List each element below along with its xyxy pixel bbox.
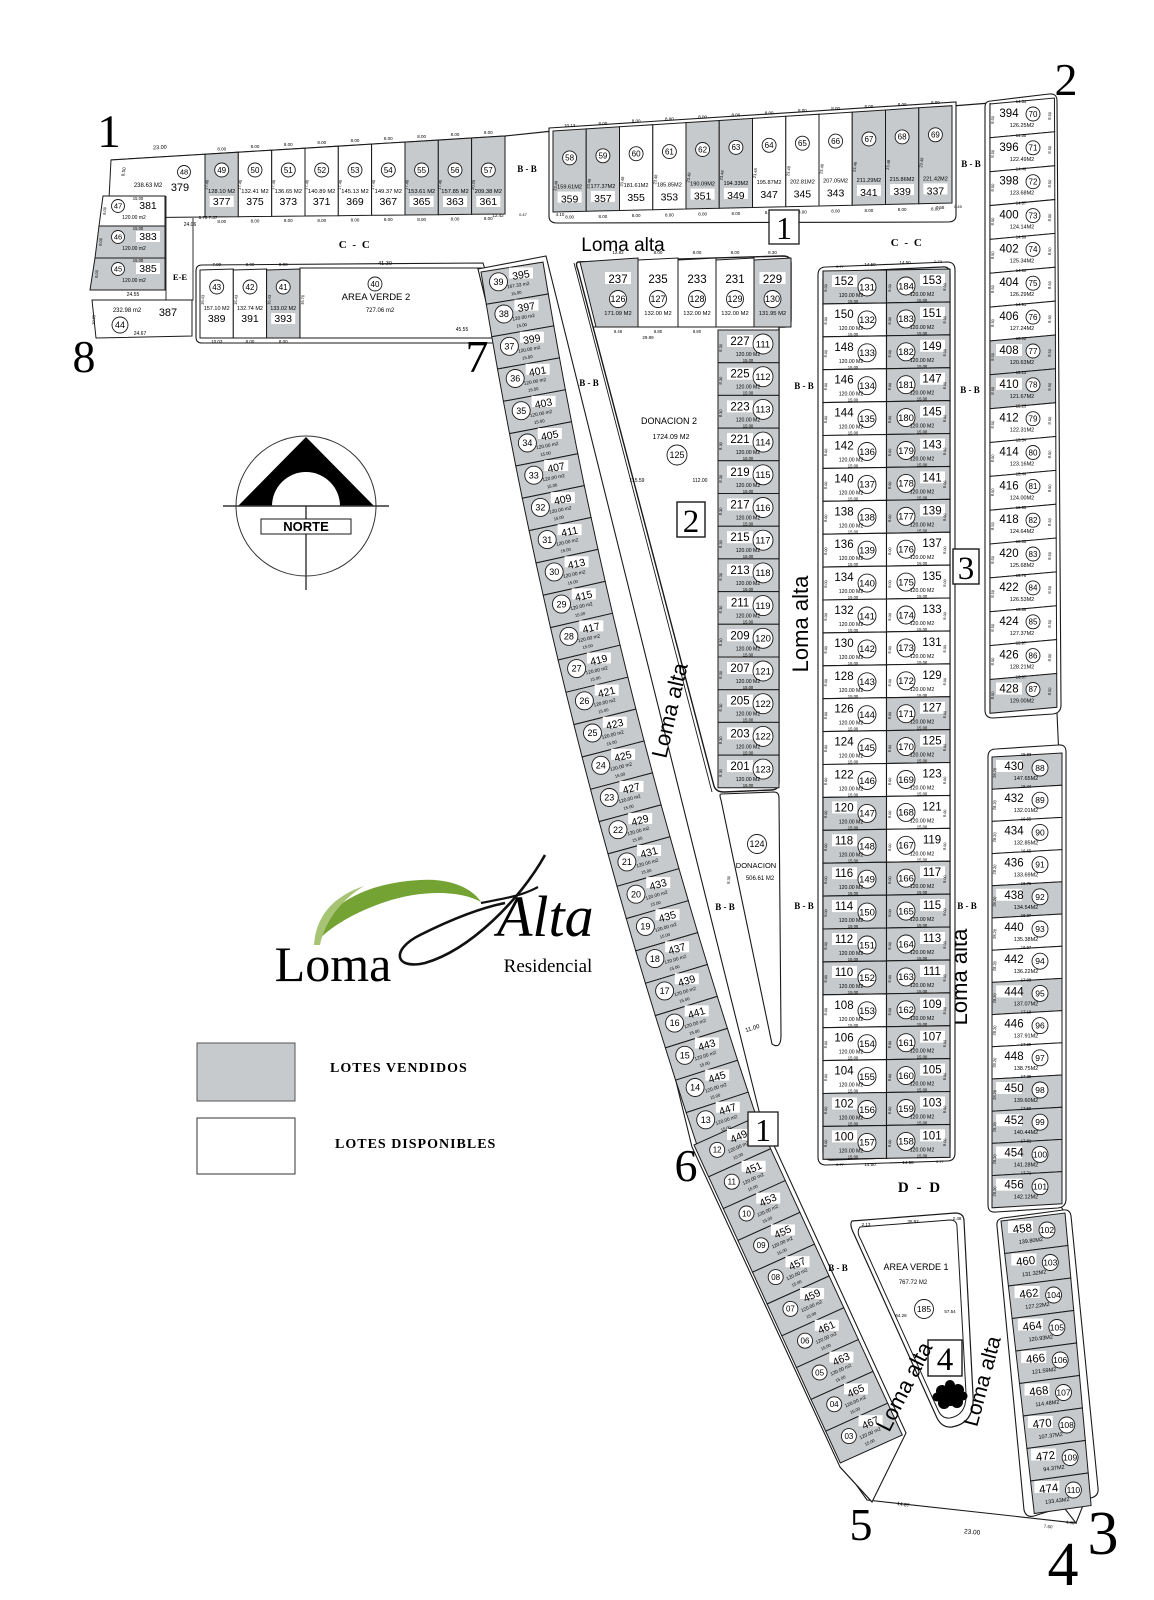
svg-text:8.00: 8.00 — [451, 132, 460, 137]
svg-text:470: 470 — [1032, 1417, 1053, 1431]
svg-text:227: 227 — [730, 336, 749, 348]
svg-text:03: 03 — [844, 1432, 853, 1441]
svg-text:93: 93 — [1035, 924, 1045, 934]
svg-text:115: 115 — [755, 470, 770, 481]
svg-text:23.00: 23.00 — [964, 1528, 981, 1536]
svg-text:125.34M2: 125.34M2 — [1010, 258, 1034, 264]
svg-text:120.00 m2: 120.00 m2 — [122, 215, 146, 221]
svg-text:107: 107 — [922, 1032, 941, 1044]
svg-text:116: 116 — [835, 868, 853, 880]
svg-text:131: 131 — [922, 637, 941, 649]
svg-text:87: 87 — [1029, 685, 1038, 694]
svg-text:14.50: 14.50 — [864, 1162, 876, 1167]
svg-text:143: 143 — [859, 677, 875, 688]
svg-text:440: 440 — [1004, 922, 1023, 934]
svg-text:215.86M2: 215.86M2 — [890, 177, 915, 183]
svg-text:100: 100 — [1033, 1149, 1047, 1159]
svg-text:137: 137 — [859, 480, 875, 491]
svg-text:211.29M2: 211.29M2 — [857, 178, 881, 184]
svg-text:177.37M2: 177.37M2 — [590, 184, 615, 190]
svg-text:8.00: 8.00 — [943, 1138, 948, 1146]
svg-text:65: 65 — [798, 139, 807, 148]
svg-text:8.00: 8.00 — [888, 909, 893, 917]
svg-text:8.00: 8.00 — [898, 102, 907, 107]
svg-text:8.00: 8.00 — [824, 942, 829, 950]
svg-text:231: 231 — [725, 274, 744, 286]
svg-text:36: 36 — [510, 374, 520, 384]
svg-text:8.00: 8.00 — [888, 712, 893, 720]
svg-text:AREA VERDE 1: AREA VERDE 1 — [883, 1262, 948, 1272]
svg-text:190.09M2: 190.09M2 — [690, 182, 715, 188]
svg-text:24.55: 24.55 — [127, 292, 140, 298]
svg-text:147: 147 — [922, 374, 941, 386]
svg-text:0.73: 0.73 — [934, 259, 943, 264]
svg-text:144: 144 — [834, 408, 854, 420]
svg-text:8.00: 8.00 — [824, 547, 829, 555]
svg-text:145: 145 — [922, 407, 941, 419]
svg-text:8.00: 8.00 — [732, 112, 741, 117]
svg-text:22: 22 — [613, 825, 623, 835]
svg-text:127.37M2: 127.37M2 — [1010, 631, 1034, 637]
svg-text:8.00: 8.00 — [888, 843, 893, 851]
svg-text:365: 365 — [413, 196, 431, 208]
svg-text:15.83: 15.83 — [1021, 752, 1032, 757]
svg-text:213: 213 — [730, 565, 749, 577]
svg-text:17: 17 — [660, 986, 670, 996]
svg-text:64.28: 64.28 — [895, 1313, 907, 1318]
svg-text:132.00 M2: 132.00 M2 — [721, 311, 748, 317]
svg-text:132.85M2: 132.85M2 — [1014, 840, 1038, 846]
svg-text:357: 357 — [594, 193, 612, 205]
svg-text:25: 25 — [587, 728, 597, 738]
svg-text:424: 424 — [999, 616, 1019, 628]
svg-text:116: 116 — [755, 503, 770, 514]
svg-text:28.20: 28.20 — [992, 928, 998, 939]
svg-text:138: 138 — [834, 506, 853, 518]
svg-text:8.00: 8.00 — [798, 108, 807, 113]
svg-text:8.50: 8.50 — [990, 115, 996, 124]
svg-text:8.00: 8.00 — [384, 136, 393, 141]
svg-text:140: 140 — [834, 473, 853, 485]
svg-text:8.50: 8.50 — [1047, 179, 1053, 188]
svg-text:124.64M2: 124.64M2 — [1010, 529, 1034, 535]
svg-text:8.00: 8.00 — [831, 209, 840, 214]
svg-text:37: 37 — [504, 341, 514, 351]
svg-text:39: 39 — [493, 277, 503, 287]
svg-text:49: 49 — [217, 166, 226, 175]
svg-text:361: 361 — [480, 196, 498, 208]
svg-text:24.06: 24.06 — [184, 222, 197, 228]
svg-text:171: 171 — [898, 709, 914, 720]
svg-text:8.00: 8.00 — [898, 207, 907, 212]
svg-text:136.22M2: 136.22M2 — [1014, 969, 1038, 975]
svg-text:141: 141 — [859, 611, 875, 622]
svg-text:139.60M2: 139.60M2 — [1014, 1098, 1038, 1104]
svg-text:153.61 M2: 153.61 M2 — [408, 189, 435, 195]
svg-text:15.00: 15.00 — [848, 1154, 859, 1159]
svg-text:08: 08 — [771, 1273, 780, 1282]
svg-text:B - B: B - B — [828, 1263, 848, 1273]
svg-text:132.41 M2: 132.41 M2 — [241, 189, 268, 195]
svg-text:111: 111 — [923, 966, 940, 978]
svg-text:8.50: 8.50 — [1047, 483, 1053, 492]
svg-text:7.60: 7.60 — [1044, 1524, 1054, 1530]
svg-text:8.00: 8.00 — [943, 678, 948, 686]
svg-text:8.50: 8.50 — [990, 454, 996, 463]
svg-text:178: 178 — [898, 479, 914, 490]
svg-text:8.00: 8.00 — [824, 1041, 829, 1049]
svg-text:8.00: 8.00 — [888, 613, 893, 621]
svg-text:D - D: D - D — [898, 1180, 942, 1196]
svg-text:15.86: 15.86 — [1016, 607, 1027, 612]
svg-text:17.50: 17.50 — [1021, 1106, 1032, 1111]
svg-text:137: 137 — [922, 538, 941, 550]
svg-text:Loma: Loma — [275, 936, 392, 992]
svg-text:16.87: 16.87 — [1021, 913, 1032, 918]
svg-text:8.00: 8.00 — [317, 218, 326, 223]
svg-text:359: 359 — [561, 194, 579, 206]
svg-text:18: 18 — [650, 954, 660, 964]
svg-text:8.00: 8.00 — [279, 262, 288, 267]
svg-text:182: 182 — [898, 347, 914, 358]
svg-text:28.20: 28.20 — [992, 1185, 998, 1196]
svg-text:48: 48 — [180, 168, 188, 177]
svg-text:76: 76 — [1029, 313, 1038, 322]
svg-text:64: 64 — [765, 141, 774, 150]
svg-text:221: 221 — [730, 434, 749, 446]
svg-text:126.25M2: 126.25M2 — [1010, 123, 1034, 129]
svg-text:LOTES VENDIDOS: LOTES VENDIDOS — [330, 1061, 468, 1076]
svg-text:8.00: 8.00 — [351, 138, 360, 143]
svg-text:438: 438 — [1004, 890, 1023, 902]
svg-text:132.00 M2: 132.00 M2 — [644, 311, 671, 317]
svg-text:114: 114 — [835, 901, 854, 913]
svg-text:15.00: 15.00 — [133, 226, 144, 231]
svg-text:15.00: 15.00 — [743, 783, 754, 788]
svg-text:8.30: 8.30 — [718, 670, 724, 679]
svg-text:28.20: 28.20 — [992, 767, 998, 778]
svg-text:148: 148 — [834, 342, 853, 354]
svg-text:450: 450 — [1004, 1083, 1023, 1095]
svg-text:40: 40 — [371, 280, 380, 289]
svg-text:12.42: 12.42 — [492, 213, 504, 218]
svg-text:428: 428 — [999, 684, 1018, 696]
svg-text:10.03: 10.03 — [211, 339, 223, 344]
svg-text:8.00: 8.00 — [246, 339, 255, 344]
svg-text:16.65: 16.65 — [1021, 849, 1032, 854]
svg-text:209.38 M2: 209.38 M2 — [475, 189, 502, 195]
svg-text:6: 6 — [675, 1140, 698, 1191]
svg-text:8.00: 8.00 — [317, 140, 326, 145]
svg-text:33: 33 — [529, 470, 539, 480]
svg-text:122.31M2: 122.31M2 — [1010, 428, 1034, 434]
svg-text:123: 123 — [922, 769, 941, 781]
svg-text:412: 412 — [999, 413, 1018, 425]
svg-text:432: 432 — [1004, 793, 1023, 805]
svg-text:123: 123 — [755, 764, 771, 775]
svg-text:8.30: 8.30 — [718, 735, 724, 744]
svg-text:8.00: 8.00 — [943, 546, 948, 554]
svg-text:110: 110 — [1067, 1485, 1081, 1495]
svg-text:2: 2 — [683, 504, 700, 540]
svg-text:375: 375 — [246, 196, 264, 208]
svg-text:78: 78 — [1029, 381, 1038, 390]
svg-text:8.00: 8.00 — [665, 212, 674, 217]
svg-text:122: 122 — [755, 732, 771, 743]
svg-text:135: 135 — [922, 571, 941, 583]
svg-text:128: 128 — [834, 671, 853, 683]
svg-text:404: 404 — [999, 277, 1019, 289]
svg-text:10: 10 — [742, 1209, 751, 1218]
svg-text:47: 47 — [114, 202, 122, 211]
svg-text:8.00: 8.00 — [451, 217, 460, 222]
svg-text:59: 59 — [598, 152, 607, 161]
svg-text:472: 472 — [1035, 1450, 1056, 1464]
svg-text:122.49M2: 122.49M2 — [1010, 157, 1034, 163]
svg-text:119: 119 — [923, 834, 941, 846]
svg-text:727.06 m2: 727.06 m2 — [366, 308, 395, 314]
svg-text:28.20: 28.20 — [992, 1153, 998, 1164]
svg-text:17.61: 17.61 — [1021, 1138, 1032, 1143]
svg-text:29.89: 29.89 — [642, 335, 654, 340]
svg-text:8.00: 8.00 — [943, 1007, 948, 1015]
svg-text:422: 422 — [999, 582, 1018, 594]
svg-text:156: 156 — [859, 1105, 875, 1116]
svg-text:8.80: 8.80 — [654, 329, 663, 334]
svg-text:223: 223 — [730, 401, 749, 413]
svg-text:8.00: 8.00 — [888, 383, 893, 391]
svg-text:04: 04 — [830, 1400, 839, 1409]
svg-text:73: 73 — [1029, 211, 1038, 220]
svg-text:81: 81 — [1029, 482, 1038, 491]
svg-text:8.00: 8.00 — [824, 778, 829, 786]
svg-text:8.30: 8.30 — [768, 250, 777, 255]
svg-text:8.00: 8.00 — [943, 612, 948, 620]
svg-text:8: 8 — [73, 331, 96, 382]
svg-text:17.39: 17.39 — [1021, 1074, 1032, 1079]
svg-text:207.05M2: 207.05M2 — [823, 179, 848, 185]
svg-text:8.00: 8.00 — [824, 843, 829, 851]
svg-text:184: 184 — [898, 281, 914, 292]
svg-text:144: 144 — [859, 710, 875, 721]
svg-text:235: 235 — [648, 274, 667, 286]
svg-text:120.63M2: 120.63M2 — [1010, 360, 1034, 366]
svg-text:176: 176 — [898, 545, 914, 556]
svg-text:430: 430 — [1004, 761, 1023, 773]
svg-text:8.50: 8.50 — [990, 657, 996, 666]
svg-text:418: 418 — [999, 514, 1018, 526]
svg-text:442: 442 — [1004, 954, 1023, 966]
svg-text:8.50: 8.50 — [1047, 687, 1053, 696]
svg-text:145.13 M2: 145.13 M2 — [341, 189, 368, 195]
svg-text:8.00: 8.00 — [824, 679, 829, 687]
svg-text:35.93: 35.93 — [907, 1219, 919, 1224]
svg-text:8.00: 8.00 — [824, 712, 829, 720]
svg-text:8.00: 8.00 — [943, 513, 948, 521]
svg-text:102: 102 — [1040, 1225, 1054, 1235]
svg-text:28.20: 28.20 — [992, 992, 998, 1003]
svg-text:369: 369 — [346, 196, 364, 208]
svg-text:133.69M2: 133.69M2 — [1014, 873, 1038, 879]
svg-text:170: 170 — [898, 742, 914, 753]
svg-text:339: 339 — [893, 186, 911, 198]
svg-text:B - B: B - B — [961, 159, 981, 169]
svg-text:153: 153 — [859, 1006, 875, 1017]
svg-text:104: 104 — [1047, 1290, 1061, 1300]
svg-text:28.20: 28.20 — [992, 863, 998, 874]
svg-text:15.55: 15.55 — [1016, 505, 1027, 510]
svg-text:126: 126 — [834, 704, 853, 716]
svg-text:8.50: 8.50 — [1047, 416, 1053, 425]
svg-text:8.00: 8.00 — [888, 317, 893, 325]
svg-text:393: 393 — [274, 313, 292, 325]
svg-text:211: 211 — [731, 598, 749, 610]
svg-text:157.85 M2: 157.85 M2 — [441, 189, 468, 195]
svg-text:8.30: 8.30 — [718, 605, 724, 614]
svg-text:127: 127 — [650, 294, 665, 304]
svg-text:43: 43 — [212, 283, 221, 292]
svg-text:57: 57 — [484, 166, 493, 175]
svg-text:AREA VERDE 2: AREA VERDE 2 — [342, 292, 411, 303]
svg-text:17.08: 17.08 — [1021, 977, 1032, 982]
svg-text:185: 185 — [917, 1304, 931, 1314]
svg-text:29: 29 — [556, 599, 566, 609]
svg-text:27: 27 — [572, 664, 582, 674]
svg-text:8.00: 8.00 — [484, 130, 493, 135]
svg-text:8.00: 8.00 — [943, 1040, 948, 1048]
svg-text:219: 219 — [730, 467, 749, 479]
svg-text:456: 456 — [1004, 1180, 1023, 1192]
svg-text:474: 474 — [1039, 1482, 1060, 1496]
svg-text:8.50: 8.50 — [990, 183, 996, 192]
svg-text:15.23: 15.23 — [1016, 404, 1027, 409]
svg-text:77: 77 — [1029, 347, 1038, 356]
svg-text:153: 153 — [922, 275, 941, 287]
svg-text:129.00M2: 129.00M2 — [1010, 699, 1034, 705]
svg-text:28.20: 28.20 — [992, 960, 998, 971]
svg-text:420: 420 — [999, 548, 1018, 560]
svg-text:146: 146 — [859, 776, 875, 787]
svg-text:8.00: 8.00 — [765, 110, 774, 115]
svg-text:402: 402 — [999, 243, 1018, 255]
svg-text:8.00: 8.00 — [824, 810, 829, 818]
svg-text:41: 41 — [279, 283, 288, 292]
svg-text:140: 140 — [859, 578, 875, 589]
svg-text:86: 86 — [1029, 651, 1038, 660]
svg-text:127: 127 — [922, 703, 941, 715]
svg-text:111: 111 — [756, 339, 770, 350]
svg-text:85: 85 — [1029, 618, 1038, 627]
svg-text:109: 109 — [922, 999, 941, 1011]
svg-text:8.50: 8.50 — [990, 217, 996, 226]
svg-text:203: 203 — [730, 728, 749, 740]
svg-text:15.13: 15.13 — [1016, 370, 1027, 375]
svg-text:14.91: 14.91 — [1016, 302, 1027, 307]
svg-text:233: 233 — [687, 274, 706, 286]
svg-text:8.50: 8.50 — [1047, 348, 1053, 357]
svg-text:152: 152 — [859, 973, 875, 984]
svg-text:8.00: 8.00 — [888, 547, 893, 555]
svg-text:8.00: 8.00 — [888, 580, 893, 588]
svg-text:14.34: 14.34 — [1016, 99, 1027, 104]
svg-text:8.00: 8.00 — [888, 646, 893, 654]
svg-text:51: 51 — [284, 166, 293, 175]
svg-text:105: 105 — [922, 1065, 941, 1077]
svg-text:181.61M2: 181.61M2 — [624, 183, 649, 189]
svg-text:120: 120 — [755, 634, 771, 645]
svg-text:28.20: 28.20 — [992, 1057, 998, 1068]
svg-text:8.50: 8.50 — [1047, 551, 1053, 560]
svg-text:14.35: 14.35 — [1016, 133, 1027, 138]
svg-text:07: 07 — [786, 1305, 795, 1314]
svg-text:28.20: 28.20 — [992, 896, 998, 907]
svg-text:171.09 M2: 171.09 M2 — [604, 311, 631, 317]
svg-text:106: 106 — [1053, 1355, 1067, 1365]
svg-text:149: 149 — [859, 875, 875, 886]
svg-text:1: 1 — [776, 210, 792, 246]
svg-text:15.65: 15.65 — [1016, 539, 1027, 544]
svg-text:8.50: 8.50 — [1047, 145, 1053, 154]
svg-text:23: 23 — [604, 793, 614, 803]
svg-text:8.00: 8.00 — [943, 744, 948, 752]
svg-text:158: 158 — [898, 1137, 914, 1148]
svg-text:16.70: 16.70 — [300, 294, 306, 305]
svg-text:100: 100 — [834, 1131, 853, 1143]
svg-text:14.69: 14.69 — [1016, 234, 1027, 239]
svg-text:8.50: 8.50 — [1047, 517, 1053, 526]
svg-text:194.33M2: 194.33M2 — [723, 181, 748, 187]
svg-text:139: 139 — [859, 546, 875, 557]
svg-text:133: 133 — [859, 348, 875, 359]
svg-text:35: 35 — [516, 406, 526, 416]
svg-text:58: 58 — [565, 154, 574, 163]
svg-text:154: 154 — [859, 1039, 875, 1050]
svg-text:8.50: 8.50 — [990, 318, 996, 327]
svg-text:8.00: 8.00 — [943, 842, 948, 850]
svg-text:134: 134 — [834, 572, 854, 584]
svg-text:112: 112 — [755, 372, 770, 383]
svg-text:119: 119 — [755, 601, 770, 612]
svg-text:8.30: 8.30 — [718, 376, 724, 385]
svg-text:132.00 M2: 132.00 M2 — [683, 311, 710, 317]
svg-text:146: 146 — [834, 375, 853, 387]
svg-text:221.42M2: 221.42M2 — [923, 176, 948, 182]
svg-text:16: 16 — [670, 1018, 680, 1028]
svg-text:238.63 M2: 238.63 M2 — [134, 183, 163, 189]
svg-text:42: 42 — [246, 283, 255, 292]
svg-text:8.50: 8.50 — [990, 284, 996, 293]
svg-text:89: 89 — [1035, 795, 1045, 805]
svg-text:17.29: 17.29 — [1021, 1042, 1032, 1047]
svg-text:8.00: 8.00 — [888, 284, 893, 292]
svg-text:28.20: 28.20 — [992, 1121, 998, 1132]
svg-text:8.00: 8.00 — [824, 1107, 829, 1115]
svg-text:122: 122 — [755, 699, 771, 710]
svg-text:74: 74 — [1029, 245, 1038, 254]
svg-text:168: 168 — [898, 808, 914, 819]
svg-text:28: 28 — [564, 632, 574, 642]
svg-text:57.54: 57.54 — [944, 1309, 956, 1314]
svg-text:103: 103 — [922, 1098, 941, 1110]
svg-text:62: 62 — [698, 145, 707, 154]
svg-text:91: 91 — [1035, 860, 1045, 870]
svg-text:8.50: 8.50 — [990, 521, 996, 530]
svg-text:92: 92 — [1035, 892, 1045, 902]
svg-text:8.50: 8.50 — [1047, 450, 1053, 459]
svg-text:8.00: 8.00 — [888, 1074, 893, 1082]
svg-text:105: 105 — [1050, 1323, 1064, 1333]
svg-text:7.00: 7.00 — [212, 262, 221, 267]
